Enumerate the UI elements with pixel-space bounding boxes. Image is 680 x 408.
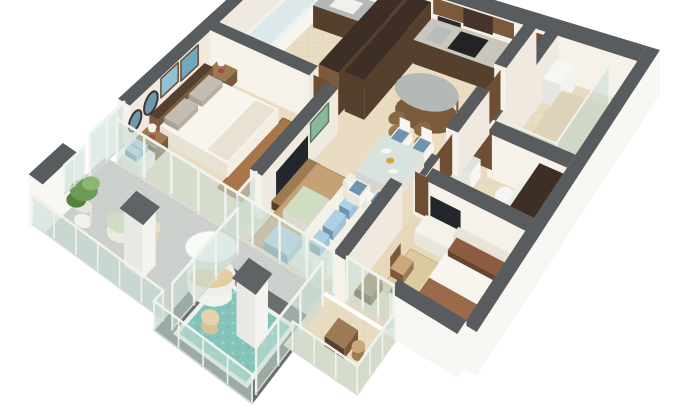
lamp-shade-b [148,123,157,130]
dinner-plate-b [388,169,398,174]
dinner-plate-a [381,149,391,154]
living-bedroom2-wall-front [333,253,345,304]
plant-foliage-c [82,176,100,190]
lamp-shade-a [217,57,226,64]
kitchen-tall-cabinet-front [345,71,365,120]
floor-plan-stage: 3D isometric floor plan render of a two-… [0,0,680,408]
bedroom2-door [415,171,428,218]
floor-plan-3d-render: 3D isometric floor plan render of a two-… [0,0,680,408]
fruit-bowl [386,158,394,164]
